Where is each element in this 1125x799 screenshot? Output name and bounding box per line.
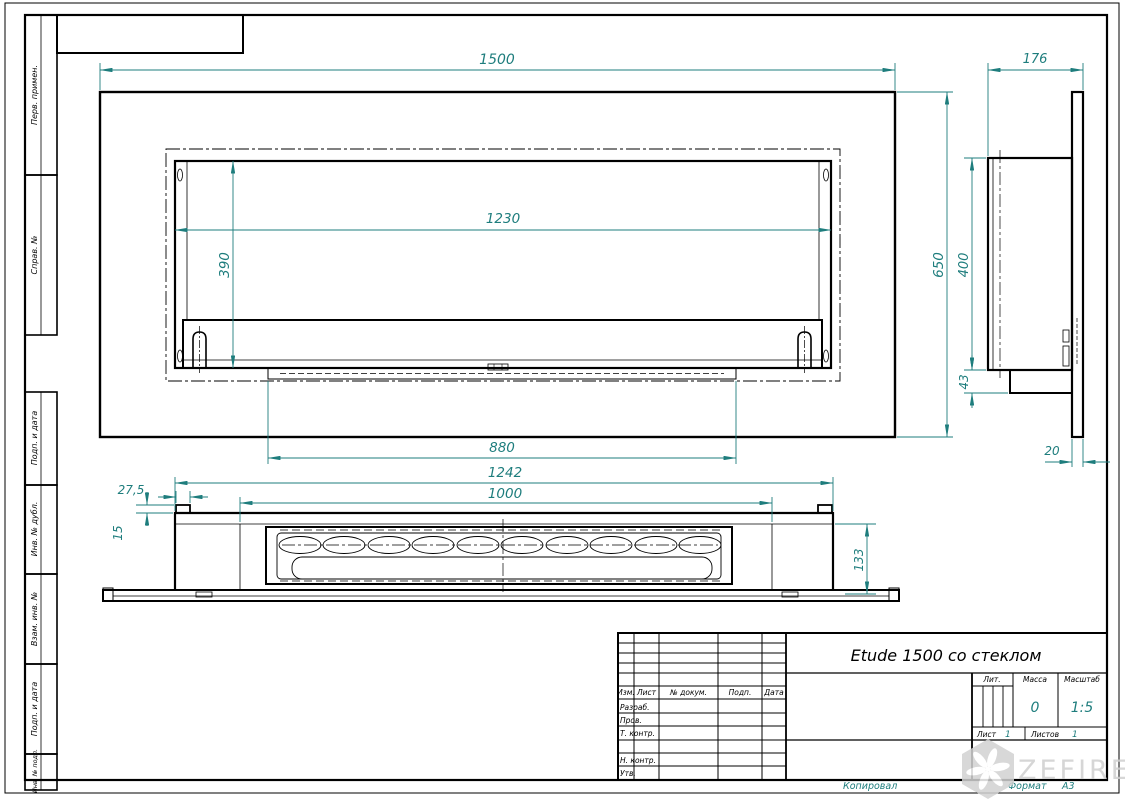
listov-label: Листов: [1030, 730, 1059, 739]
side-bracket-outline: [1010, 370, 1072, 393]
side-view: [988, 92, 1083, 437]
dim-panel-thickness: 20: [1044, 444, 1060, 458]
masshtab-label: Масштаб: [1064, 675, 1100, 684]
margin-label-inv-dubl: Инв. № дубл.: [30, 502, 39, 557]
col-dokum: № докум.: [669, 688, 707, 697]
row-razrab: Разраб.: [620, 703, 649, 712]
dim-side-bracket: 43: [957, 374, 971, 389]
plan-body-outline: [175, 513, 833, 590]
scale-value: 1:5: [1071, 700, 1094, 716]
burner-block-outline: [266, 527, 732, 584]
corner-stamp-box: [57, 15, 243, 53]
burner-slots: [279, 537, 721, 554]
dim-lip-width: 880: [489, 440, 515, 456]
dim-tab-width: 27,5: [118, 483, 145, 497]
mount-tab-left: [176, 505, 190, 513]
margin-label-sprav-no: Справ. №: [30, 236, 39, 275]
massa-value: 0: [1031, 700, 1040, 716]
dim-side-body-height: 400: [957, 253, 972, 278]
fuel-tank-slot: [292, 557, 712, 579]
list-value: 1: [1005, 730, 1011, 740]
margin-label-podp-data-2: Подп. и дата: [30, 682, 39, 737]
col-list: Лист: [636, 688, 657, 697]
drawing-sheet: Перв. примен. Справ. № Подп. и дата Инв.…: [0, 0, 1125, 799]
listov-value: 1: [1072, 730, 1078, 740]
margin-labels: Перв. примен. Справ. № Подп. и дата Инв.…: [30, 65, 39, 793]
row-prov: Пров.: [620, 716, 642, 725]
margin-strip: [25, 15, 57, 790]
row-nkontr: Н. контр.: [620, 756, 656, 765]
col-podp: Подп.: [729, 688, 752, 697]
massa-label: Масса: [1023, 675, 1047, 684]
lit-label: Лит.: [982, 675, 1000, 684]
dim-side-depth: 176: [1023, 52, 1048, 67]
opening-outline: [175, 161, 831, 368]
mounting-centerline-rect: [166, 149, 840, 381]
zefire-watermark-text: ZEFIRE: [1018, 755, 1125, 786]
col-izm: Изм.: [617, 688, 635, 697]
dim-front-width: 1500: [479, 52, 515, 68]
mount-tab-right: [818, 505, 832, 513]
dim-body-length: 1242: [488, 465, 522, 481]
margin-label-perv-primen: Перв. примен.: [30, 65, 39, 125]
dim-body-depth: 133: [852, 549, 866, 572]
dim-opening-height: 390: [217, 252, 233, 278]
margin-label-podp-data-1: Подп. и дата: [30, 411, 39, 466]
dimensions: [100, 63, 1110, 594]
dimension-labels: 1500 1230 390 650 880 176 400 43 20 27,5…: [111, 52, 1060, 571]
list-label: Лист: [976, 730, 997, 739]
row-utv: Утв.: [620, 769, 636, 778]
drawing-title: Etude 1500 со стеклом: [851, 646, 1042, 665]
plan-front-panel-outline: [103, 590, 899, 601]
dim-opening-width: 1230: [486, 211, 520, 227]
margin-label-inv-podl: Инв. № подл.: [31, 749, 39, 793]
kopiroval-label: Копировал: [843, 781, 897, 792]
side-body-outline: [988, 158, 1072, 370]
dim-tab-height: 15: [111, 525, 125, 540]
col-data: Дата: [763, 688, 784, 697]
firebox-tray-outline: [183, 320, 822, 368]
dim-burner-length: 1000: [488, 486, 522, 502]
bottom-view: [103, 505, 899, 601]
sheet-frame: [5, 3, 1119, 793]
margin-label-vzam-inv: Взам. инв. №: [30, 592, 39, 646]
row-tkontr: Т. контр.: [620, 729, 655, 738]
side-panel-outline: [1072, 92, 1083, 437]
dim-front-height: 650: [931, 252, 947, 278]
